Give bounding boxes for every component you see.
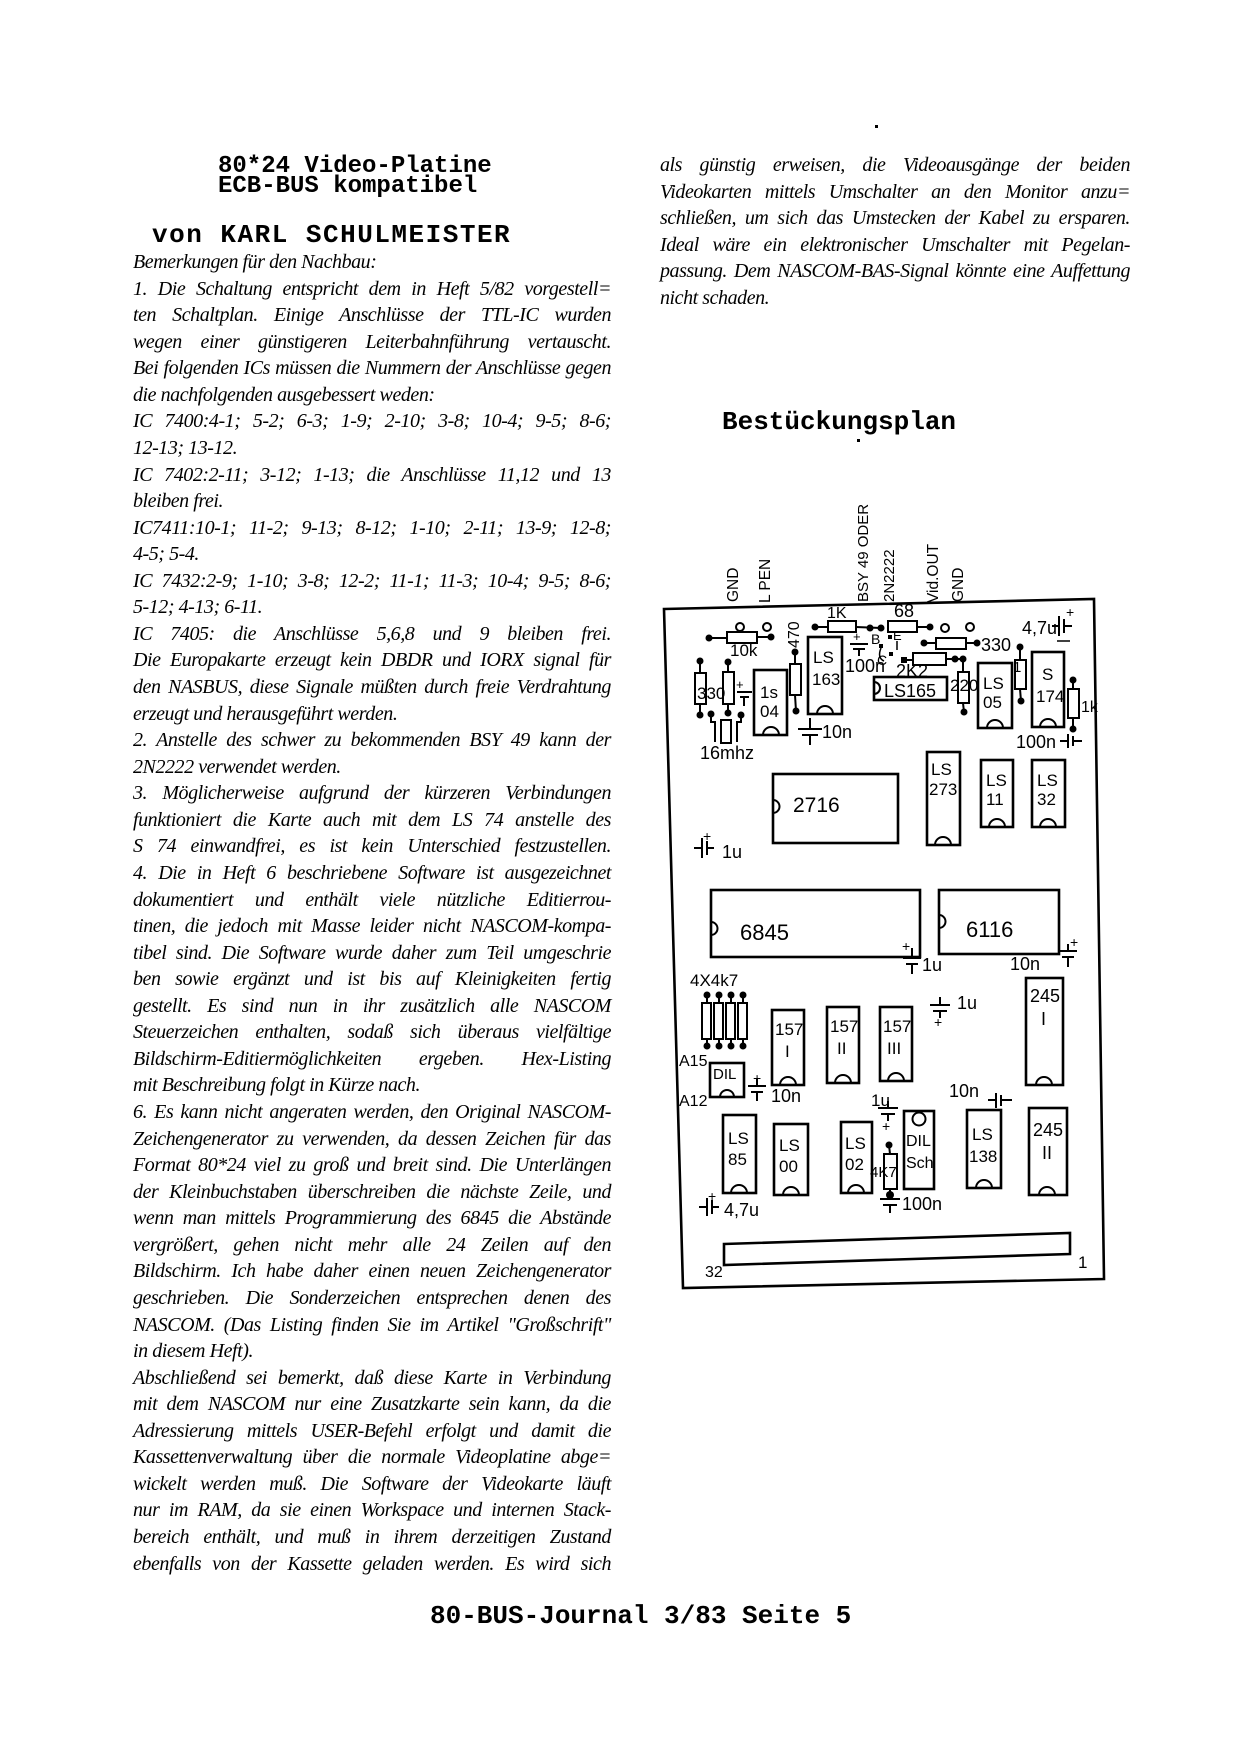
svg-text:S: S [1042, 665, 1053, 684]
svg-text:68: 68 [894, 601, 914, 621]
svg-text:157: 157 [830, 1017, 858, 1036]
svg-text:2N2222: 2N2222 [881, 549, 898, 602]
svg-text:+: + [736, 677, 744, 692]
svg-text:157: 157 [775, 1020, 803, 1039]
svg-text:+: + [902, 938, 910, 954]
svg-text:LS: LS [845, 1134, 866, 1153]
svg-text:100n: 100n [902, 1194, 942, 1214]
svg-text:B: B [871, 631, 880, 647]
svg-text:+: + [708, 1188, 716, 1204]
svg-text:00: 00 [779, 1157, 798, 1176]
svg-text:+: + [934, 1014, 942, 1030]
svg-text:LS165: LS165 [884, 681, 936, 701]
svg-text:157: 157 [883, 1017, 911, 1036]
svg-text:+: + [703, 828, 711, 844]
svg-text:+: + [1070, 934, 1078, 950]
svg-text:245: 245 [1033, 1120, 1063, 1140]
svg-text:LS: LS [983, 674, 1004, 693]
svg-text:4,7u: 4,7u [1022, 618, 1057, 638]
svg-text:E: E [893, 628, 902, 643]
svg-text:330: 330 [981, 635, 1011, 655]
svg-text:220: 220 [950, 676, 978, 695]
svg-text:138: 138 [969, 1147, 997, 1166]
svg-text:16mhz: 16mhz [700, 743, 754, 763]
svg-text:I: I [785, 1042, 790, 1061]
svg-text:100n: 100n [1016, 732, 1056, 752]
svg-text:4K7: 4K7 [870, 1164, 897, 1181]
svg-text:III: III [887, 1039, 901, 1058]
svg-text:LS: LS [779, 1136, 800, 1155]
svg-text:Sch: Sch [906, 1155, 934, 1172]
svg-text:6845: 6845 [740, 920, 789, 945]
svg-text:II: II [1042, 1143, 1052, 1163]
svg-text:BSY 49 ODER: BSY 49 ODER [855, 504, 872, 602]
svg-text:1K: 1K [827, 605, 847, 622]
svg-text:10n: 10n [949, 1081, 979, 1101]
svg-text:1: 1 [1013, 659, 1021, 676]
svg-text:11: 11 [986, 790, 1004, 809]
svg-text:+: + [853, 629, 861, 644]
svg-text:II: II [837, 1039, 846, 1058]
svg-text:A15: A15 [679, 1053, 708, 1070]
svg-text:A12: A12 [679, 1093, 708, 1110]
svg-text:470: 470 [786, 621, 803, 648]
svg-text:1u: 1u [957, 993, 977, 1013]
svg-text:1u: 1u [722, 842, 742, 862]
svg-text:32: 32 [1037, 790, 1056, 809]
svg-text:10n: 10n [822, 722, 852, 742]
svg-text:+: + [882, 1118, 890, 1134]
svg-text:02: 02 [845, 1155, 864, 1174]
svg-text:2716: 2716 [793, 794, 840, 817]
svg-text:04: 04 [760, 702, 779, 721]
svg-text:1u: 1u [922, 955, 942, 975]
svg-text:6116: 6116 [966, 917, 1013, 942]
svg-text:4X4k7: 4X4k7 [690, 971, 738, 990]
svg-text:DIL: DIL [713, 1066, 736, 1083]
svg-text:LS: LS [813, 648, 834, 667]
svg-text:10k: 10k [730, 641, 758, 660]
svg-text:L PEN: L PEN [757, 559, 774, 603]
svg-text:174: 174 [1036, 687, 1064, 706]
svg-text:1s: 1s [760, 683, 778, 702]
svg-text:LS: LS [1037, 771, 1058, 790]
svg-text:LS: LS [728, 1129, 749, 1148]
svg-text:1k: 1k [1081, 699, 1099, 716]
svg-text:+: + [1066, 604, 1074, 620]
svg-text:330: 330 [697, 684, 725, 703]
svg-text:LS: LS [986, 771, 1007, 790]
svg-text:163: 163 [812, 670, 840, 689]
svg-text:245: 245 [1030, 986, 1060, 1006]
svg-text:I: I [1041, 1009, 1046, 1029]
svg-text:GND: GND [725, 568, 742, 602]
svg-text:LS: LS [972, 1125, 993, 1144]
svg-text:32: 32 [705, 1264, 723, 1281]
svg-text:85: 85 [728, 1150, 747, 1169]
svg-text:273: 273 [929, 780, 957, 799]
svg-text:4,7u: 4,7u [724, 1200, 759, 1220]
svg-text:100n: 100n [845, 656, 885, 676]
svg-text:Vid.OUT: Vid.OUT [925, 543, 942, 603]
svg-text:GND: GND [950, 568, 967, 602]
svg-text:05: 05 [983, 693, 1002, 712]
svg-text:1: 1 [1078, 1253, 1087, 1272]
svg-text:10n: 10n [771, 1086, 801, 1106]
svg-text:LS: LS [931, 760, 952, 779]
svg-text:10n: 10n [1010, 954, 1040, 974]
svg-text:DIL: DIL [906, 1133, 931, 1150]
